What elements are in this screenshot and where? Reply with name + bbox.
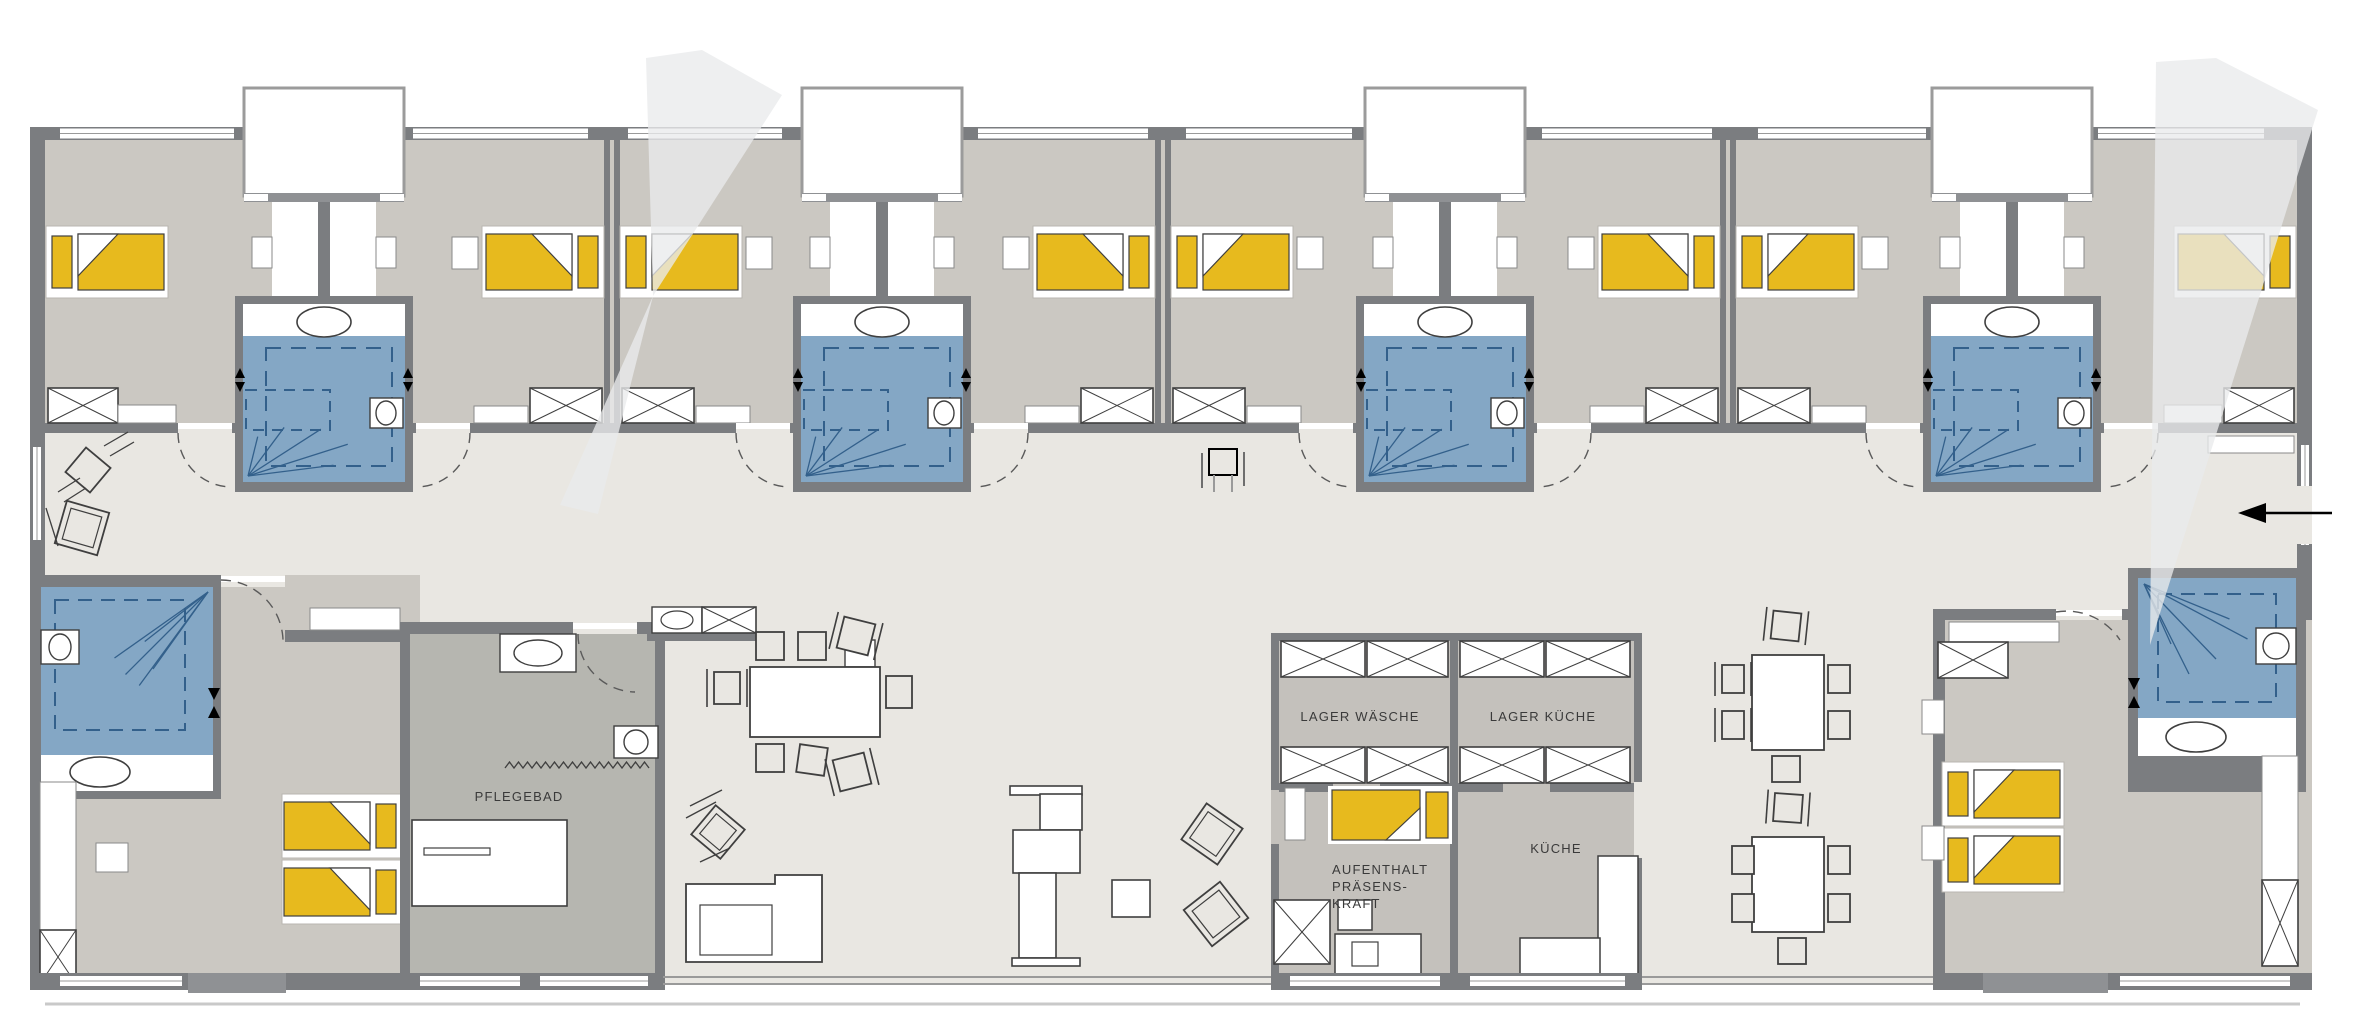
chair-icon (1828, 665, 1850, 693)
chair-icon (798, 632, 826, 660)
toilet-icon (2058, 398, 2091, 428)
bed (46, 226, 168, 298)
label-lager-kueche: LAGER KÜCHE (1490, 709, 1596, 724)
window-icon (60, 976, 182, 986)
service-block (1271, 633, 1642, 990)
window-icon (1542, 129, 1712, 139)
dressing-area (252, 202, 396, 302)
bed (1598, 226, 1720, 298)
shared-bathroom (1356, 296, 1534, 492)
wardrobe-icon (702, 607, 756, 633)
bed (282, 860, 402, 924)
bed (282, 794, 402, 858)
bed (482, 226, 604, 298)
care-bathtub-icon (412, 820, 567, 906)
toilet-icon (1491, 398, 1524, 428)
window-icon (1470, 976, 1625, 986)
chair-icon (1732, 846, 1754, 874)
chair-icon (1732, 894, 1754, 922)
wardrobe-icon (1173, 388, 1245, 423)
pflegebad-room (400, 622, 665, 990)
dressing-area (1373, 202, 1517, 302)
sink-icon (614, 726, 658, 758)
wardrobe-icon (1546, 747, 1630, 783)
wardrobe-icon (1738, 388, 1810, 423)
chair-icon (1828, 711, 1850, 739)
terrace (244, 88, 404, 202)
floor-plan-page: PFLEGEBAD LAGER WÄSCHE LAGER KÜCHE KÜCHE… (0, 0, 2353, 1026)
bed (1328, 786, 1452, 844)
suite-left (30, 575, 420, 990)
bench-icon (686, 875, 822, 962)
washstand-icon (652, 607, 702, 633)
floor-plan: PFLEGEBAD LAGER WÄSCHE LAGER KÜCHE KÜCHE… (0, 0, 2353, 1026)
label-aufenthalt-1: AUFENTHALT (1332, 862, 1428, 877)
window-icon (540, 976, 648, 986)
bed (1942, 762, 2064, 826)
toilet-icon (370, 398, 403, 428)
window-icon (420, 976, 520, 986)
wardrobe-icon (1460, 747, 1544, 783)
window-icon (1758, 129, 1926, 139)
chair-icon (1828, 894, 1850, 922)
wardrobe-icon (1938, 642, 2008, 678)
wardrobe-icon (1460, 641, 1544, 677)
label-aufenthalt-2: PRÄSENS- (1332, 879, 1408, 894)
bed (1033, 226, 1155, 298)
label-aufenthalt-3: KRAFT (1332, 896, 1381, 911)
window-icon (413, 129, 588, 139)
wardrobe-icon (1646, 388, 1718, 423)
wardrobe-icon (1367, 747, 1448, 783)
bed (1942, 828, 2064, 892)
wardrobe-icon (1367, 641, 1448, 677)
window-icon (60, 129, 234, 139)
wardrobe-icon (1274, 900, 1330, 964)
window-icon (978, 129, 1148, 139)
wardrobe-icon (1546, 641, 1630, 677)
wardrobe-icon (1281, 641, 1365, 677)
wardrobe-icon (1081, 388, 1153, 423)
dressing-area (1940, 202, 2084, 302)
chair-icon (886, 676, 912, 708)
toilet-icon (928, 398, 961, 428)
chair-icon (1828, 846, 1850, 874)
toilet-icon (41, 630, 79, 664)
chair-icon (756, 632, 784, 660)
shared-bathroom (793, 296, 971, 492)
floor-plan-drawing (30, 50, 2332, 1004)
shared-bathroom (235, 296, 413, 492)
dressing-area (810, 202, 954, 302)
chair-icon (1772, 756, 1800, 782)
window-icon (33, 447, 41, 540)
terrace (1365, 88, 1525, 202)
wardrobe-icon (2224, 388, 2294, 423)
label-lager-waesche: LAGER WÄSCHE (1300, 709, 1419, 724)
label-kueche: KÜCHE (1530, 841, 1582, 856)
bed (1171, 226, 1293, 298)
wardrobe-icon (622, 388, 694, 423)
chair-icon (1778, 938, 1806, 964)
wardrobe-icon (1281, 747, 1365, 783)
bed (1736, 226, 1858, 298)
washstand-icon (500, 634, 576, 672)
shared-bathroom (1923, 296, 2101, 492)
toilet-icon (2256, 628, 2296, 664)
wardrobe-icon (48, 388, 118, 423)
window-icon (1186, 129, 1352, 139)
wardrobe-icon (2262, 880, 2298, 966)
terrace (802, 88, 962, 202)
suite-bathroom (33, 575, 221, 799)
label-pflegebad: PFLEGEBAD (475, 789, 564, 804)
window-icon (1290, 976, 1440, 986)
window-icon (2120, 976, 2290, 986)
terrace (1932, 88, 2092, 202)
chair-icon (756, 744, 784, 772)
suite-right (1922, 568, 2312, 990)
chair-icon (796, 744, 828, 776)
wardrobe-icon (530, 388, 602, 423)
